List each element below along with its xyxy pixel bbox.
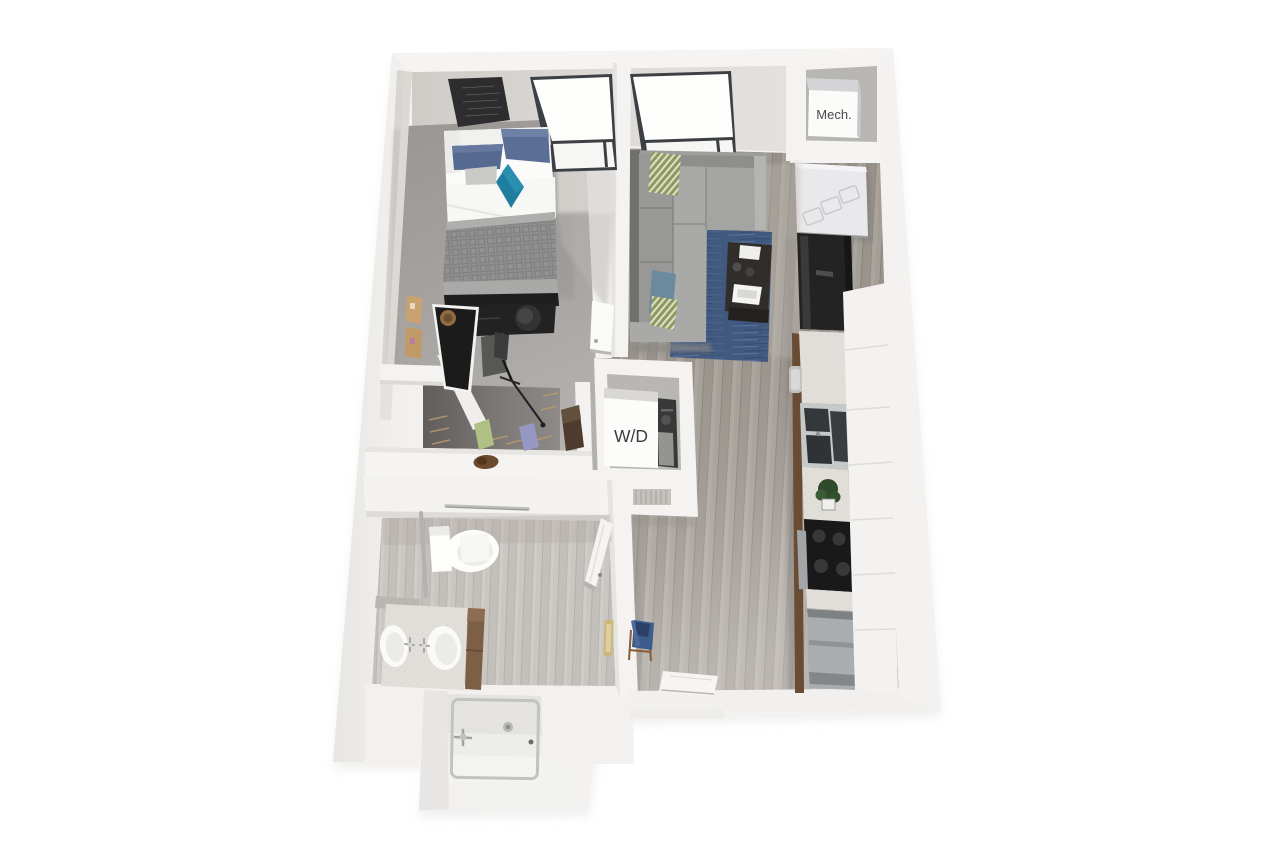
svg-text:Mech.: Mech. <box>816 107 851 122</box>
svg-text:W/D: W/D <box>614 426 648 446</box>
